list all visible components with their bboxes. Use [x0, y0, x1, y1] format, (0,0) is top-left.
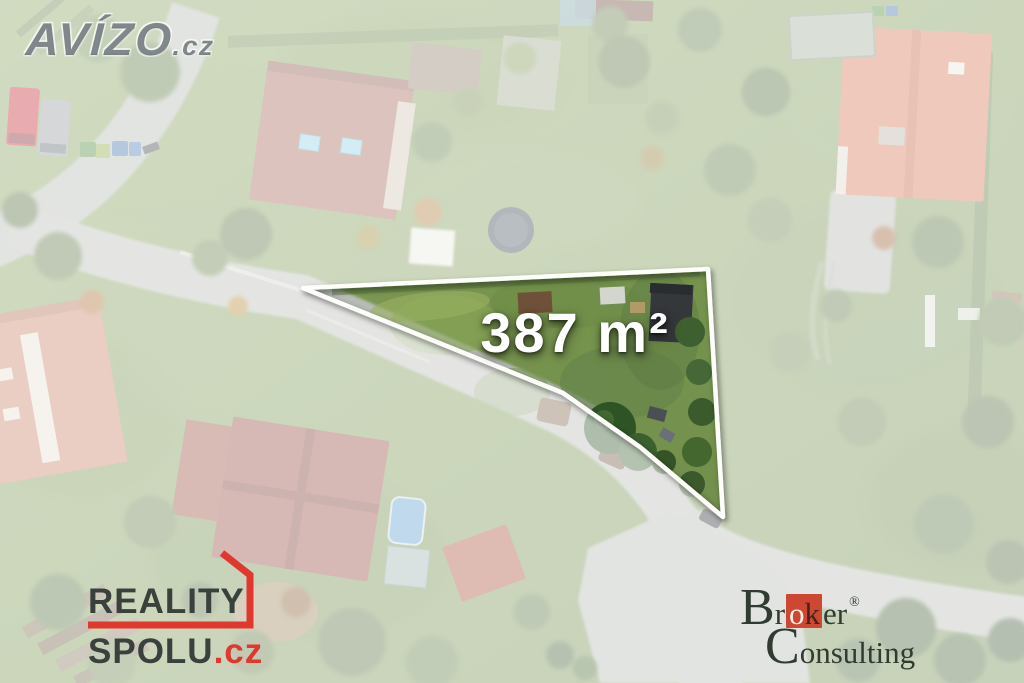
plot-area-label: 387 m²	[455, 300, 695, 365]
avizo-brand-text: AVÍZO	[25, 13, 175, 65]
consulting-letters: onsulting	[800, 635, 915, 670]
real-estate-listing-photo: 387 m² AVÍZO.cz REALITY SPOLU.cz Broker®…	[0, 0, 1024, 683]
registered-trademark-icon: ®	[849, 595, 860, 610]
spolu-line: SPOLU.cz	[88, 632, 263, 672]
broker-consulting-logo: Broker® Consulting	[740, 582, 1024, 673]
consulting-initial: C	[765, 618, 800, 675]
consulting-word: Consulting	[765, 621, 1024, 673]
reality-spolu-logo: REALITY SPOLU.cz	[82, 548, 272, 678]
avizo-tld-text: .cz	[172, 31, 216, 61]
reality-tld: .cz	[214, 632, 264, 671]
avizo-watermark: AVÍZO.cz	[25, 12, 217, 66]
reality-word: REALITY	[88, 582, 245, 622]
spolu-word: SPOLU	[88, 632, 214, 671]
